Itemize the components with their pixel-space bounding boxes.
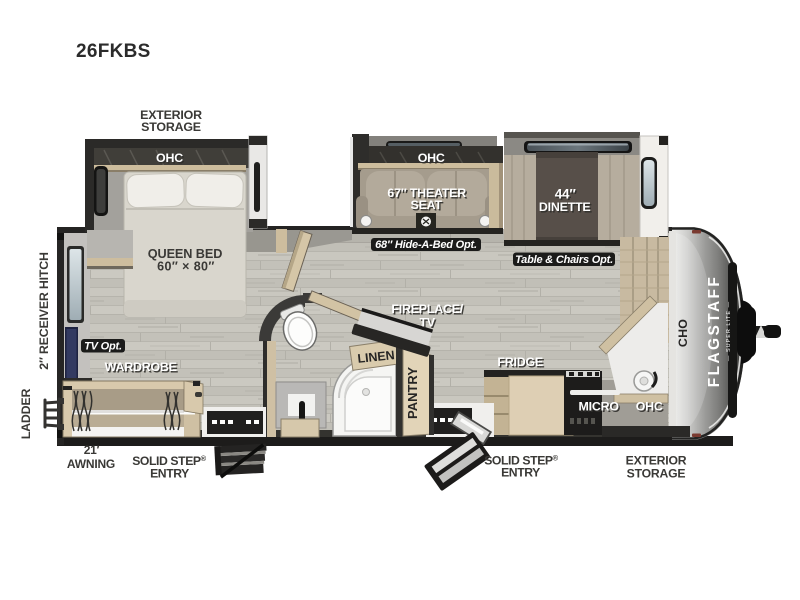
svg-text:OHC: OHC (636, 400, 663, 414)
svg-text:68″ Hide-A-Bed Opt.: 68″ Hide-A-Bed Opt. (375, 239, 477, 251)
svg-text:— SUPER LITE —: — SUPER LITE — (726, 301, 732, 361)
svg-text:CHO: CHO (676, 319, 690, 347)
svg-text:WARDROBE: WARDROBE (105, 360, 177, 374)
svg-text:DINETTE: DINETTE (539, 200, 591, 214)
svg-text:OHC: OHC (418, 151, 445, 165)
svg-text:26FKBS: 26FKBS (76, 41, 151, 62)
svg-text:60″ × 80″: 60″ × 80″ (157, 260, 215, 274)
svg-text:TV Opt.: TV Opt. (84, 341, 122, 353)
svg-text:MICRO: MICRO (579, 400, 620, 414)
svg-text:2″ RECEIVER HITCH: 2″ RECEIVER HITCH (37, 252, 51, 370)
svg-text:EXTERIOR: EXTERIOR (626, 454, 687, 468)
svg-text:LADDER: LADDER (19, 389, 33, 440)
svg-text:STORAGE: STORAGE (627, 467, 686, 481)
svg-text:ENTRY: ENTRY (150, 467, 189, 481)
svg-text:FIREPLACE/: FIREPLACE/ (391, 302, 463, 316)
svg-text:PANTRY: PANTRY (405, 367, 420, 419)
svg-text:TV: TV (419, 316, 435, 330)
svg-text:Table & Chairs Opt.: Table & Chairs Opt. (515, 254, 613, 266)
svg-text:SEAT: SEAT (411, 198, 443, 212)
svg-text:ENTRY: ENTRY (501, 466, 540, 480)
svg-text:FLAGSTAFF: FLAGSTAFF (706, 275, 723, 388)
svg-text:STORAGE: STORAGE (141, 120, 201, 134)
svg-text:FRIDGE: FRIDGE (497, 355, 543, 369)
svg-text:21′: 21′ (84, 443, 100, 457)
svg-text:AWNING: AWNING (67, 457, 115, 471)
svg-text:OHC: OHC (156, 151, 183, 165)
